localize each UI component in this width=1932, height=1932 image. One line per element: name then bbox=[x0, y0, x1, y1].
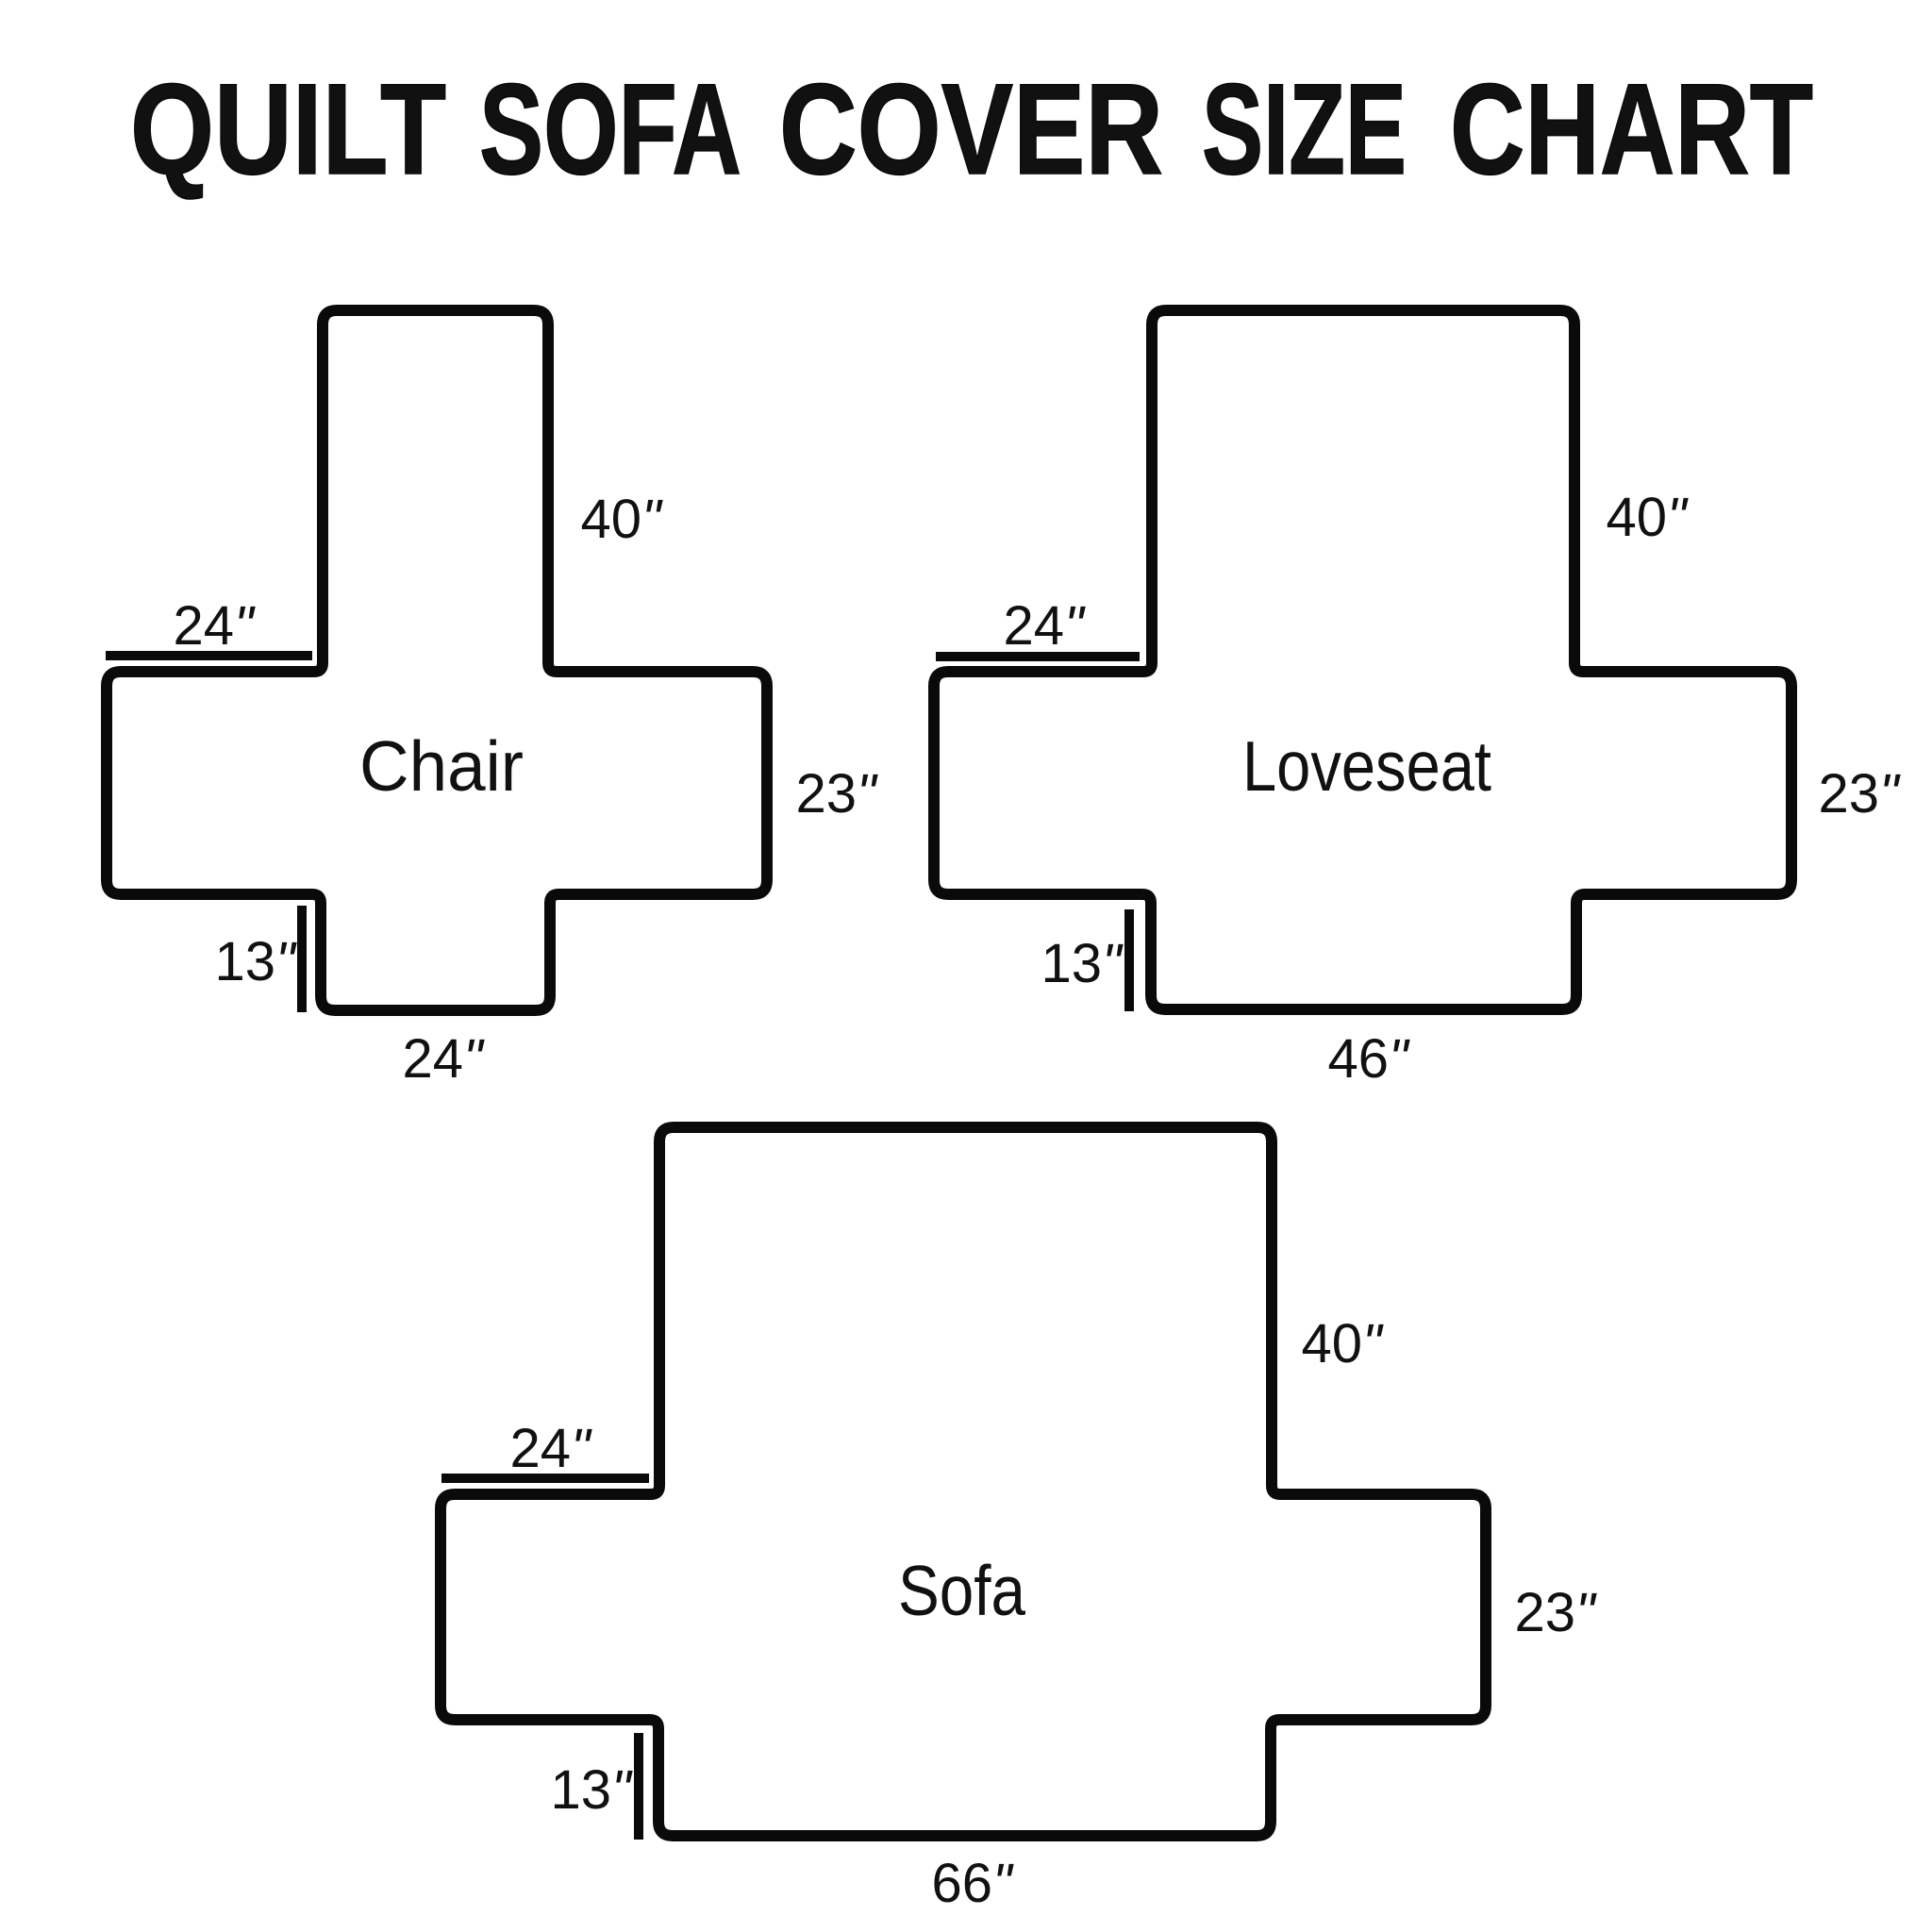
svg-text:24": 24" bbox=[509, 1418, 592, 1479]
svg-text:40": 40" bbox=[580, 489, 663, 550]
svg-text:24": 24" bbox=[1003, 595, 1086, 657]
svg-text:23": 23" bbox=[1818, 763, 1901, 824]
svg-text:46": 46" bbox=[1327, 1028, 1410, 1090]
svg-text:13": 13" bbox=[214, 931, 297, 992]
svg-text:COVER: COVER bbox=[779, 58, 1163, 202]
svg-text:Sofa: Sofa bbox=[898, 1551, 1025, 1630]
svg-text:SOFA: SOFA bbox=[479, 58, 741, 202]
svg-text:40": 40" bbox=[1301, 1313, 1384, 1374]
svg-text:CHART: CHART bbox=[1450, 58, 1813, 202]
svg-text:SIZE: SIZE bbox=[1202, 58, 1407, 202]
svg-text:24": 24" bbox=[173, 595, 256, 657]
svg-text:Chair: Chair bbox=[359, 726, 524, 806]
svg-text:13": 13" bbox=[1041, 933, 1124, 994]
svg-text:40": 40" bbox=[1606, 487, 1689, 548]
svg-text:24": 24" bbox=[402, 1028, 485, 1090]
svg-text:23": 23" bbox=[1514, 1582, 1597, 1643]
svg-text:23": 23" bbox=[795, 763, 878, 824]
svg-text:13": 13" bbox=[550, 1759, 633, 1821]
svg-text:66": 66" bbox=[931, 1853, 1014, 1914]
svg-text:Loveseat: Loveseat bbox=[1242, 726, 1491, 806]
svg-text:QUILT: QUILT bbox=[130, 58, 446, 202]
